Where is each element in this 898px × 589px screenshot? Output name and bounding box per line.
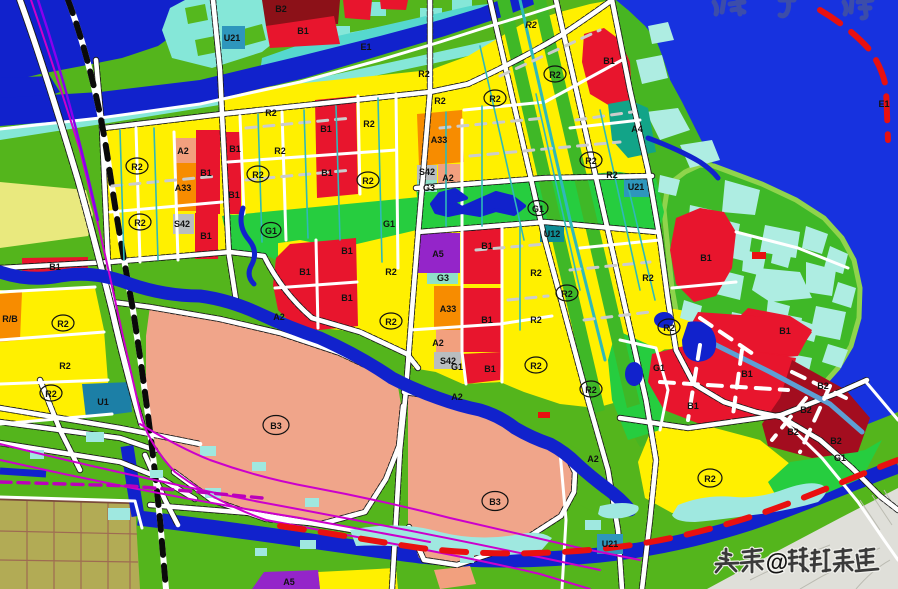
svg-text:R2: R2 [59, 361, 71, 371]
svg-text:R2: R2 [585, 156, 597, 166]
svg-text:B1: B1 [321, 168, 333, 178]
svg-text:B1: B1 [341, 246, 353, 256]
svg-text:R2: R2 [489, 94, 501, 104]
svg-text:R2: R2 [561, 289, 573, 299]
svg-text:U21: U21 [224, 33, 241, 43]
svg-text:G3: G3 [437, 273, 449, 283]
svg-text:R2: R2 [704, 474, 716, 484]
svg-text:B2: B2 [787, 427, 799, 437]
svg-text:A5: A5 [432, 249, 444, 259]
svg-text:U21: U21 [602, 539, 619, 549]
svg-text:B1: B1 [200, 231, 212, 241]
svg-text:G1: G1 [834, 453, 846, 463]
svg-text:G1: G1 [653, 363, 665, 373]
svg-text:G3: G3 [423, 183, 435, 193]
svg-text:B2: B2 [800, 405, 812, 415]
svg-text:R2: R2 [265, 108, 277, 118]
svg-text:B1: B1 [779, 326, 791, 336]
svg-text:R2: R2 [45, 389, 57, 399]
svg-text:B1: B1 [741, 369, 753, 379]
svg-text:B1: B1 [299, 267, 311, 277]
svg-text:B2: B2 [275, 4, 287, 14]
svg-text:A33: A33 [431, 135, 448, 145]
svg-text:G1: G1 [532, 204, 544, 214]
svg-text:@: @ [766, 549, 788, 575]
svg-text:B1: B1 [200, 168, 212, 178]
svg-text:R2: R2 [434, 96, 446, 106]
svg-text:A2: A2 [177, 146, 189, 156]
svg-text:R2: R2 [134, 218, 146, 228]
svg-text:B1: B1 [687, 401, 699, 411]
svg-text:R2: R2 [585, 385, 597, 395]
svg-text:U21: U21 [628, 182, 645, 192]
svg-text:A2: A2 [273, 312, 285, 322]
svg-text:A2: A2 [432, 338, 444, 348]
svg-text:B3: B3 [270, 421, 282, 431]
svg-text:B2: B2 [830, 436, 842, 446]
svg-text:B3: B3 [489, 497, 501, 507]
svg-text:G1: G1 [451, 362, 463, 372]
svg-text:B1: B1 [297, 26, 309, 36]
svg-text:R2: R2 [385, 317, 397, 327]
svg-text:R2: R2 [525, 20, 537, 30]
svg-text:B1: B1 [320, 124, 332, 134]
svg-text:U12: U12 [544, 229, 561, 239]
svg-text:R2: R2 [385, 267, 397, 277]
svg-text:B1: B1 [229, 144, 241, 154]
svg-text:S42: S42 [419, 167, 435, 177]
svg-text:B1: B1 [603, 56, 615, 66]
svg-text:A4: A4 [631, 124, 643, 134]
svg-text:B1: B1 [700, 253, 712, 263]
svg-text:R2: R2 [530, 315, 542, 325]
svg-text:B1: B1 [49, 262, 61, 272]
svg-text:R2: R2 [530, 268, 542, 278]
svg-text:G1: G1 [265, 226, 277, 236]
svg-text:A2: A2 [451, 392, 463, 402]
svg-text:B1: B1 [341, 293, 353, 303]
svg-text:R2: R2 [642, 273, 654, 283]
svg-text:R2: R2 [606, 170, 618, 180]
svg-text:R2: R2 [418, 69, 430, 79]
svg-text:R2: R2 [131, 162, 143, 172]
svg-text:R2: R2 [362, 176, 374, 186]
svg-text:S42: S42 [174, 219, 190, 229]
svg-text:R/B: R/B [2, 314, 18, 324]
svg-text:R2: R2 [530, 361, 542, 371]
svg-text:R2: R2 [363, 119, 375, 129]
svg-text:R2: R2 [549, 70, 561, 80]
svg-text:G1: G1 [383, 219, 395, 229]
svg-text:E1: E1 [360, 42, 371, 52]
svg-text:R2: R2 [57, 319, 69, 329]
svg-text:B1: B1 [484, 364, 496, 374]
svg-text:R2: R2 [252, 170, 264, 180]
svg-text:A33: A33 [175, 183, 192, 193]
svg-text:B1: B1 [481, 241, 493, 251]
svg-text:R2: R2 [274, 146, 286, 156]
svg-text:B1: B1 [481, 315, 493, 325]
svg-text:A2: A2 [442, 173, 454, 183]
svg-text:B1: B1 [228, 190, 240, 200]
svg-text:A5: A5 [283, 577, 295, 587]
svg-text:A2: A2 [587, 454, 599, 464]
svg-text:B2: B2 [817, 381, 829, 391]
svg-text:R2: R2 [663, 323, 675, 333]
svg-text:E1: E1 [878, 99, 889, 109]
svg-text:U1: U1 [97, 397, 109, 407]
svg-text:A33: A33 [440, 304, 457, 314]
